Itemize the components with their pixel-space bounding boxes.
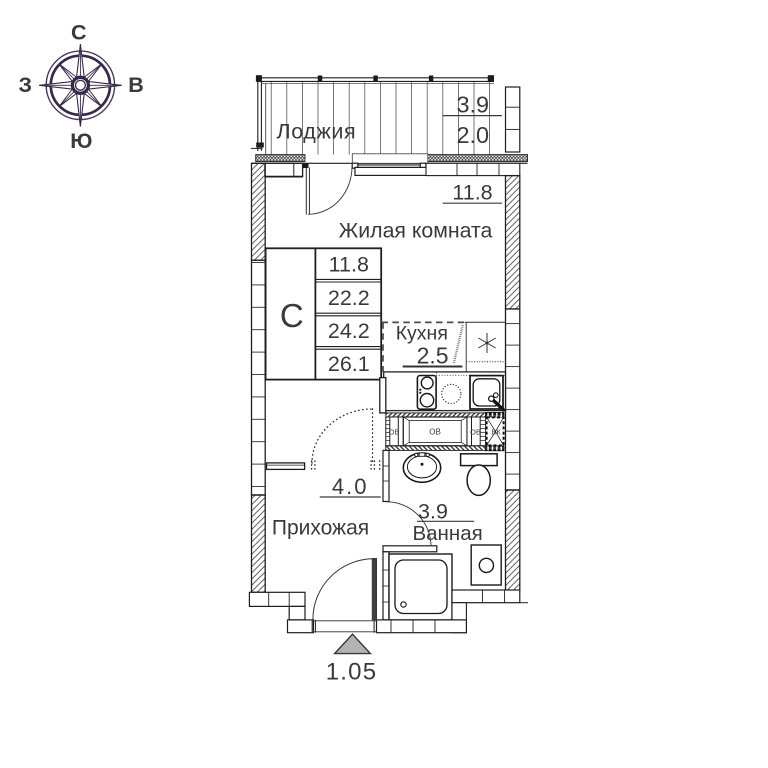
svg-text:Кухня: Кухня — [396, 323, 448, 345]
svg-text:2.0: 2.0 — [456, 122, 489, 148]
svg-text:3.9: 3.9 — [418, 500, 448, 524]
svg-text:В: В — [128, 73, 144, 97]
svg-text:Ю: Ю — [70, 129, 92, 153]
svg-text:4.0: 4.0 — [332, 474, 369, 499]
svg-text:3.9: 3.9 — [456, 92, 489, 118]
svg-text:С: С — [280, 297, 304, 334]
svg-text:1.05: 1.05 — [326, 658, 378, 685]
svg-text:ОВ: ОВ — [389, 427, 400, 436]
svg-text:ВК: ВК — [491, 428, 501, 437]
svg-text:С: С — [71, 21, 87, 45]
svg-text:22.2: 22.2 — [328, 286, 370, 310]
svg-text:Прихожая: Прихожая — [272, 516, 369, 539]
svg-text:11.8: 11.8 — [329, 253, 369, 277]
svg-text:Ванная: Ванная — [412, 522, 482, 545]
svg-text:11.8: 11.8 — [452, 181, 492, 205]
svg-text:2.5: 2.5 — [417, 342, 449, 368]
svg-text:24.2: 24.2 — [328, 319, 370, 343]
svg-text:ОВ: ОВ — [470, 427, 481, 436]
svg-text:Лоджия: Лоджия — [277, 119, 357, 143]
svg-text:Жилая комната: Жилая комната — [339, 218, 493, 242]
svg-text:З: З — [19, 73, 32, 97]
svg-text:26.1: 26.1 — [328, 352, 370, 376]
svg-text:ОВ: ОВ — [429, 427, 441, 436]
